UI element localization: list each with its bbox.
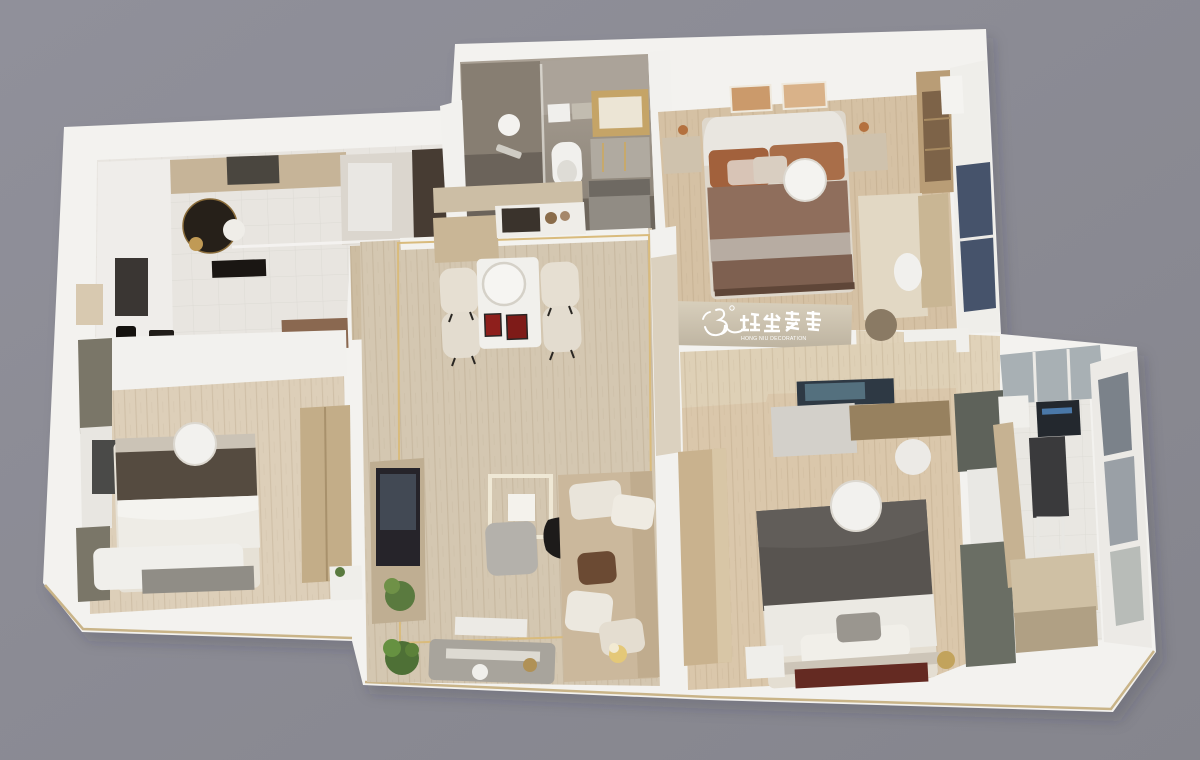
svg-text:HONG NIU DECORATION: HONG NIU DECORATION: [741, 336, 806, 342]
